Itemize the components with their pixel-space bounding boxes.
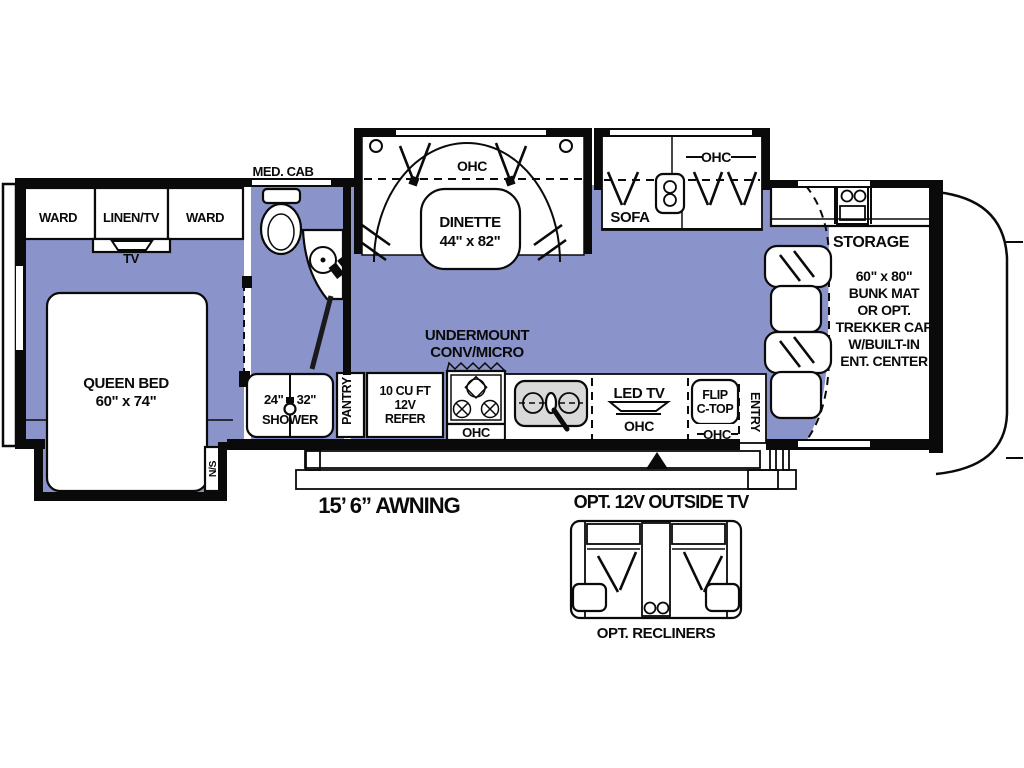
svg-text:SHOWER: SHOWER xyxy=(262,412,319,427)
toilet-icon xyxy=(261,189,301,254)
sofa-ohc-label: OHC xyxy=(701,149,731,165)
entry-step xyxy=(783,449,789,470)
led-tv-label: LED TV xyxy=(614,385,665,402)
dinette-slide-window xyxy=(396,130,546,135)
awning-bracket xyxy=(306,450,320,470)
floorplan-canvas: MED. CAB WARD LINEN/TV WARD TV QUEEN BED… xyxy=(0,0,1024,768)
bedroom-window xyxy=(16,266,23,350)
med-cab-label: MED. CAB xyxy=(252,164,313,179)
kitchen-sink-icon xyxy=(515,381,587,429)
svg-text:12V: 12V xyxy=(394,398,416,412)
opt-recliners xyxy=(571,521,741,618)
svg-text:BUNK MAT: BUNK MAT xyxy=(849,285,920,301)
ward-right-label: WARD xyxy=(186,210,224,225)
awning-label: 15’ 6” AWNING xyxy=(318,493,459,518)
outside-tv-marker-icon xyxy=(646,452,668,469)
exterior-features xyxy=(296,449,796,489)
recliner-armrest xyxy=(706,584,739,611)
refer-label: 10 CU FT xyxy=(380,384,432,398)
bunk-label: 60" x 80" xyxy=(856,268,912,284)
svg-text:TREKKER CAP: TREKKER CAP xyxy=(836,319,933,335)
shower-label: 24" x 32" xyxy=(264,392,316,407)
awning-bar xyxy=(296,470,778,489)
queen-bed xyxy=(47,293,207,491)
floorplan-svg: MED. CAB WARD LINEN/TV WARD TV QUEEN BED… xyxy=(0,0,1024,768)
sofa-slide-window xyxy=(610,130,752,135)
awning-rail xyxy=(305,451,760,468)
entry-label: ENTRY xyxy=(748,392,762,433)
sofa-label: SOFA xyxy=(610,209,650,226)
svg-text:W/BUILT-IN: W/BUILT-IN xyxy=(848,336,919,352)
pantry-label: PANTRY xyxy=(340,376,354,425)
svg-text:C-TOP: C-TOP xyxy=(697,402,734,416)
svg-text:60" x 74": 60" x 74" xyxy=(96,393,157,410)
flip-ohc-label: OHC xyxy=(703,427,732,442)
stove-icon xyxy=(447,363,505,424)
recliners-label: OPT. RECLINERS xyxy=(597,625,716,642)
dinette-ohc-label: OHC xyxy=(457,158,487,174)
cab-window-top xyxy=(798,181,870,186)
undermount-label: UNDERMOUNT xyxy=(425,327,530,344)
med-cab-inset xyxy=(252,180,331,185)
svg-text:CONV/MICRO: CONV/MICRO xyxy=(430,344,524,361)
svg-text:44" x 82": 44" x 82" xyxy=(440,233,501,250)
tv-label: TV xyxy=(123,251,140,266)
dinette-label: DINETTE xyxy=(439,214,501,231)
nightstand-label: N/S xyxy=(207,460,219,477)
outside-tv-label: OPT. 12V OUTSIDE TV xyxy=(574,492,750,512)
recliner-armrest xyxy=(573,584,606,611)
wall-stub-top xyxy=(242,276,252,288)
cab-front xyxy=(936,192,1023,474)
ward-left-label: WARD xyxy=(39,210,77,225)
storage-label: STORAGE xyxy=(833,234,910,251)
svg-text:ENT. CENTER: ENT. CENTER xyxy=(840,353,928,369)
linen-tv-label: LINEN/TV xyxy=(103,210,160,225)
tv-ohc-label: OHC xyxy=(624,418,654,434)
entry-platform xyxy=(748,470,796,489)
svg-text:OR OPT.: OR OPT. xyxy=(857,302,910,318)
svg-text:REFER: REFER xyxy=(385,412,426,426)
cab-window-bottom xyxy=(798,441,870,447)
bedroom-slide-exterior xyxy=(3,184,16,446)
stove-ohc-label: OHC xyxy=(462,425,491,440)
entry-step xyxy=(770,449,776,470)
queen-bed-label: QUEEN BED xyxy=(83,375,169,392)
flip-ctop-label: FLIP xyxy=(702,388,728,402)
